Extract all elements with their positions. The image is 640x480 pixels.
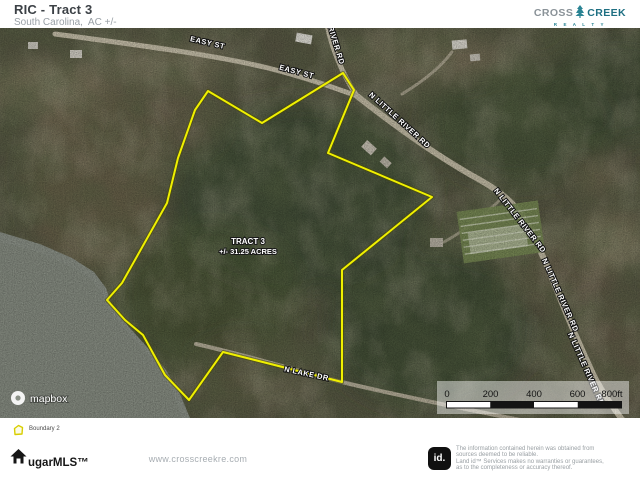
- mapbox-logo[interactable]: mapbox: [11, 391, 68, 405]
- tract-label-name: TRACT 3: [231, 237, 265, 246]
- page-subtitle: South Carolina, AC +/-: [14, 17, 117, 28]
- scale-tick-800ft: 800ft: [601, 389, 622, 400]
- landid-group: id. The information contained herein was…: [428, 446, 632, 472]
- disclaimer-line: as to the completeness or accuracy there…: [456, 465, 632, 472]
- scale-tick-400: 400: [526, 389, 542, 400]
- mapbox-icon-center: [15, 395, 20, 400]
- boundary-legend-icon: [12, 423, 24, 441]
- website-url[interactable]: www.crosscreekre.com: [149, 454, 248, 464]
- legend: Boundary 2: [0, 418, 640, 445]
- mls-logo: ugarMLS™: [10, 449, 89, 469]
- header: RIC - Tract 3 South Carolina, AC +/- CRO…: [0, 0, 640, 28]
- scale-bar: 0 200 400 600 800ft: [437, 381, 629, 414]
- scale-tick-0: 0: [444, 389, 449, 400]
- mapbox-wordmark: mapbox: [30, 393, 68, 405]
- footer: ugarMLS™ www.crosscreekre.com id. The in…: [0, 445, 640, 480]
- tree-icon: [575, 5, 585, 21]
- tract-label-acreage: +/- 31.25 ACRES: [219, 247, 277, 256]
- crosscreek-logo: CROSS CREEK R E A L T Y · · ·: [534, 3, 636, 31]
- landid-logo: id.: [428, 447, 451, 470]
- scale-tick-200: 200: [483, 389, 499, 400]
- house-icon: [10, 449, 27, 469]
- page-title: RIC - Tract 3: [14, 3, 117, 17]
- page: RIC - Tract 3 South Carolina, AC +/- CRO…: [0, 0, 640, 480]
- mls-wordmark: ugarMLS™: [28, 457, 89, 469]
- logo-cross-text: CROSS: [534, 8, 573, 19]
- satellite-map[interactable]: EASY ST EASY ST RIVER RD N LITTLE RIVER …: [0, 28, 640, 418]
- boundary-legend-label: Boundary 2: [29, 426, 60, 432]
- scale-tick-600: 600: [570, 389, 586, 400]
- map-canvas[interactable]: EASY ST EASY ST RIVER RD N LITTLE RIVER …: [0, 28, 640, 418]
- logo-creek-text: CREEK: [587, 8, 626, 19]
- disclaimer-text: The information contained herein was obt…: [456, 446, 632, 472]
- header-titles: RIC - Tract 3 South Carolina, AC +/-: [14, 3, 117, 28]
